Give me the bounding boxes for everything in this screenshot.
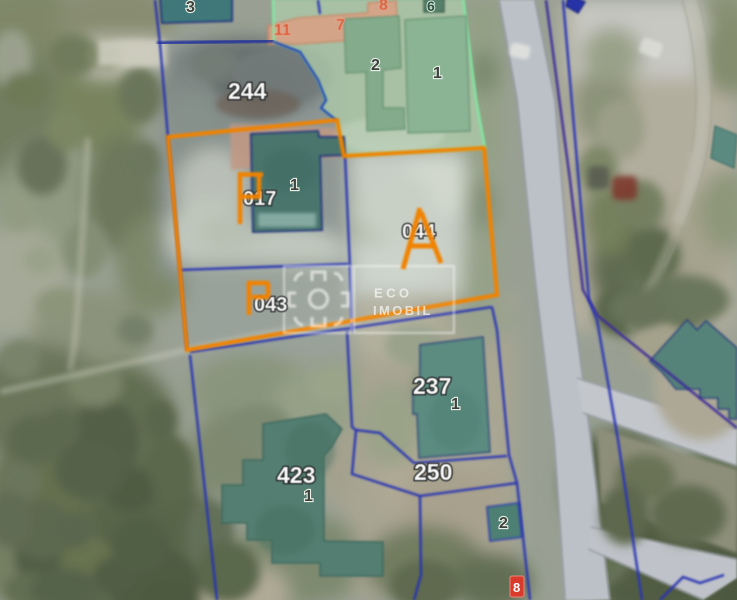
svg-text:1: 1 xyxy=(451,396,460,413)
svg-text:11: 11 xyxy=(274,22,291,39)
svg-text:2: 2 xyxy=(499,515,508,532)
svg-text:8: 8 xyxy=(513,580,520,595)
svg-text:8: 8 xyxy=(379,0,388,14)
svg-text:423: 423 xyxy=(277,462,315,488)
svg-text:ECO: ECO xyxy=(374,286,412,301)
svg-text:250: 250 xyxy=(414,459,452,485)
svg-text:244: 244 xyxy=(228,78,267,104)
svg-text:IMOBIL: IMOBIL xyxy=(373,303,433,318)
svg-text:237: 237 xyxy=(413,373,451,399)
svg-text:2: 2 xyxy=(371,57,380,74)
svg-text:6: 6 xyxy=(427,0,435,14)
svg-text:1: 1 xyxy=(304,488,313,505)
svg-text:3: 3 xyxy=(186,0,195,16)
svg-text:7: 7 xyxy=(336,17,345,34)
svg-text:1: 1 xyxy=(290,177,299,194)
svg-text:1: 1 xyxy=(433,65,442,82)
